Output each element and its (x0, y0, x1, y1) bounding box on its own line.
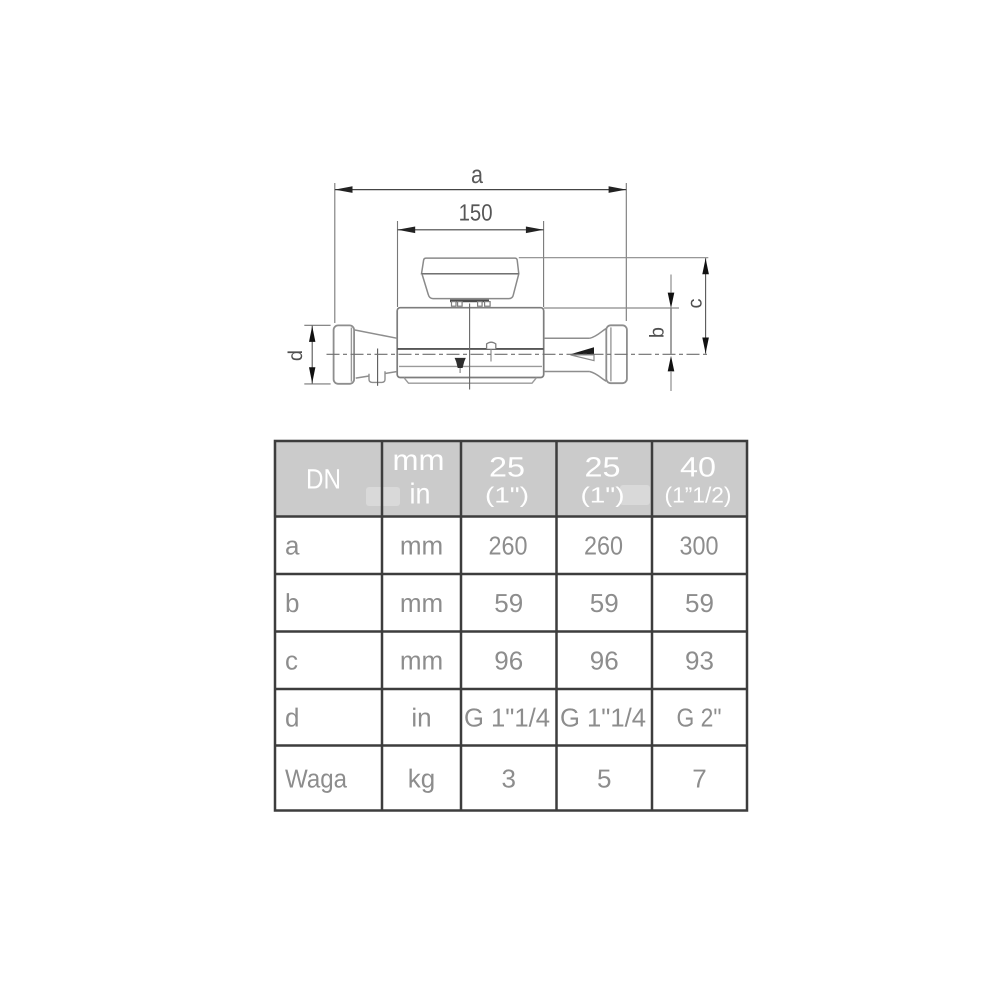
svg-text:300: 300 (680, 531, 719, 561)
svg-text:260: 260 (584, 531, 623, 561)
svg-text:kg: kg (408, 764, 435, 794)
svg-text:G 1"1/4: G 1"1/4 (560, 703, 646, 733)
svg-text:Waga: Waga (285, 764, 347, 794)
svg-text:mm: mm (400, 531, 443, 561)
svg-text:7: 7 (692, 764, 706, 794)
svg-text:G 2": G 2" (677, 703, 722, 733)
svg-text:DN: DN (306, 463, 341, 494)
svg-text:3: 3 (502, 764, 516, 794)
svg-text:(1”1/2): (1”1/2) (665, 483, 732, 508)
svg-text:d: d (285, 703, 299, 733)
svg-text:93: 93 (685, 646, 714, 676)
svg-text:a: a (285, 531, 300, 561)
svg-text:260: 260 (489, 531, 528, 561)
svg-text:mm: mm (400, 646, 443, 676)
svg-text:a: a (471, 161, 483, 189)
svg-text:d: d (285, 350, 307, 361)
svg-text:25: 25 (585, 452, 621, 483)
svg-text:59: 59 (685, 588, 714, 618)
svg-text:59: 59 (590, 588, 619, 618)
svg-text:mm: mm (400, 588, 443, 618)
svg-text:mm: mm (393, 445, 445, 477)
svg-text:G 1"1/4: G 1"1/4 (464, 703, 550, 733)
svg-text:in: in (411, 703, 431, 733)
svg-text:96: 96 (590, 646, 619, 676)
svg-text:in: in (410, 479, 431, 511)
svg-text:c: c (285, 646, 298, 676)
svg-text:b: b (285, 588, 299, 618)
svg-text:25: 25 (489, 452, 525, 483)
svg-text:150: 150 (459, 200, 493, 226)
svg-text:c: c (685, 299, 707, 309)
svg-text:5: 5 (597, 764, 611, 794)
svg-text:(1"): (1") (581, 483, 625, 508)
svg-text:(1"): (1") (485, 483, 529, 508)
svg-text:59: 59 (494, 588, 523, 618)
svg-text:b: b (647, 327, 669, 338)
svg-text:40: 40 (680, 452, 716, 483)
svg-text:96: 96 (494, 646, 523, 676)
